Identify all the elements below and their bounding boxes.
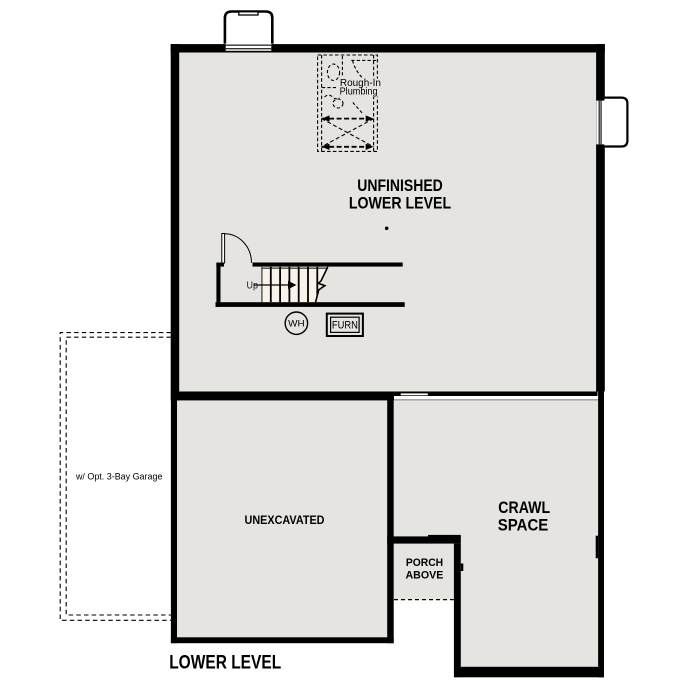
svg-text:LOWER LEVEL: LOWER LEVEL bbox=[169, 652, 281, 673]
svg-text:PORCH: PORCH bbox=[406, 557, 443, 569]
svg-text:CRAWL: CRAWL bbox=[498, 498, 550, 517]
svg-text:w/ Opt. 3-Bay Garage: w/ Opt. 3-Bay Garage bbox=[75, 471, 162, 481]
svg-text:UNEXCAVATED: UNEXCAVATED bbox=[245, 514, 325, 527]
svg-text:ABOVE: ABOVE bbox=[406, 569, 444, 581]
svg-text:LOWER LEVEL: LOWER LEVEL bbox=[349, 193, 451, 212]
svg-text:Up: Up bbox=[247, 280, 259, 292]
svg-text:WH: WH bbox=[288, 319, 305, 330]
svg-text:SPACE: SPACE bbox=[498, 516, 549, 535]
svg-text:FURN: FURN bbox=[332, 320, 358, 332]
svg-text:Plumbing: Plumbing bbox=[340, 87, 378, 98]
svg-text:UNFINISHED: UNFINISHED bbox=[357, 176, 443, 195]
